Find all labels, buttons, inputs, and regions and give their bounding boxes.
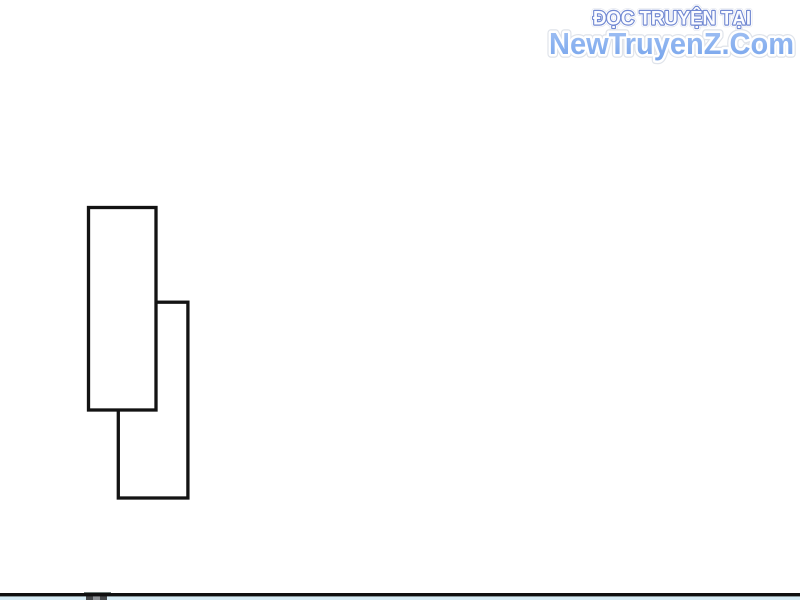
svg-text:NewTruyenZ.Com: NewTruyenZ.Com <box>549 26 794 61</box>
